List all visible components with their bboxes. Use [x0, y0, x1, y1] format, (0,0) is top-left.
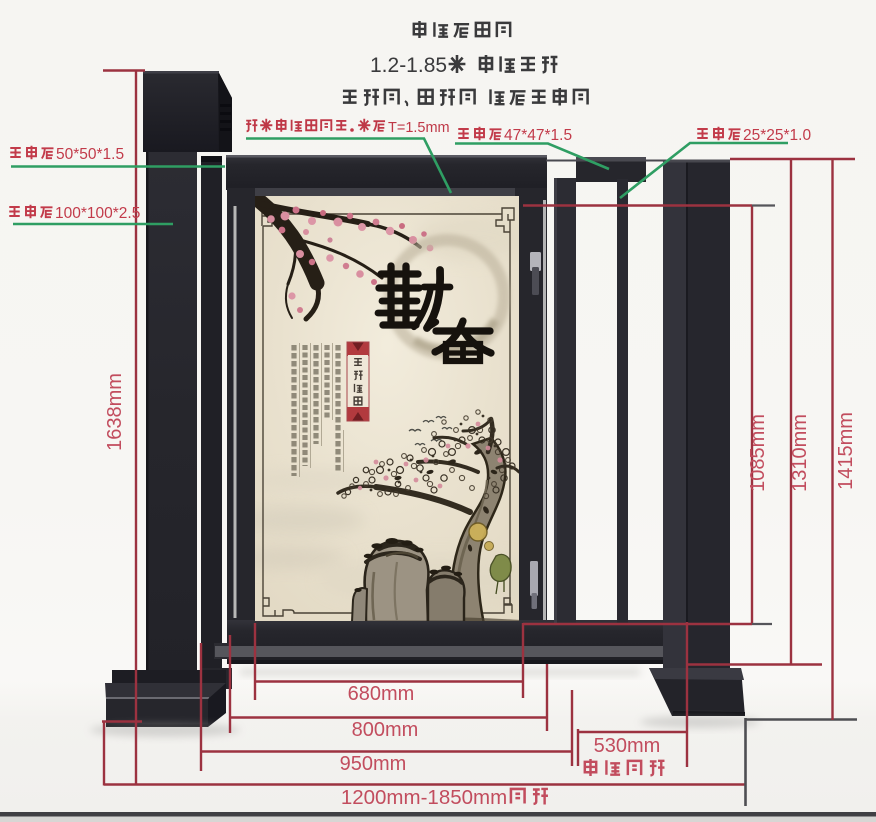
svg-text:25*25*1.0: 25*25*1.0 [743, 127, 811, 144]
svg-text:800mm: 800mm [352, 719, 419, 741]
svg-text:1415mm: 1415mm [835, 412, 857, 490]
svg-text:50*50*1.5: 50*50*1.5 [56, 146, 124, 163]
svg-text:950mm: 950mm [340, 753, 407, 775]
svg-text:1.2-1.85: 1.2-1.85 [370, 54, 447, 77]
svg-text:530mm: 530mm [594, 735, 661, 757]
svg-text:T=1.5mm: T=1.5mm [388, 120, 450, 136]
svg-text:47*47*1.5: 47*47*1.5 [504, 127, 572, 144]
svg-text:680mm: 680mm [348, 683, 415, 705]
svg-text:1310mm: 1310mm [789, 414, 811, 492]
svg-text:1085mm: 1085mm [747, 414, 769, 492]
svg-text:1200mm-1850mm: 1200mm-1850mm [341, 786, 507, 809]
svg-text:100*100*2.5: 100*100*2.5 [55, 205, 140, 222]
svg-text:1638mm: 1638mm [104, 373, 126, 451]
